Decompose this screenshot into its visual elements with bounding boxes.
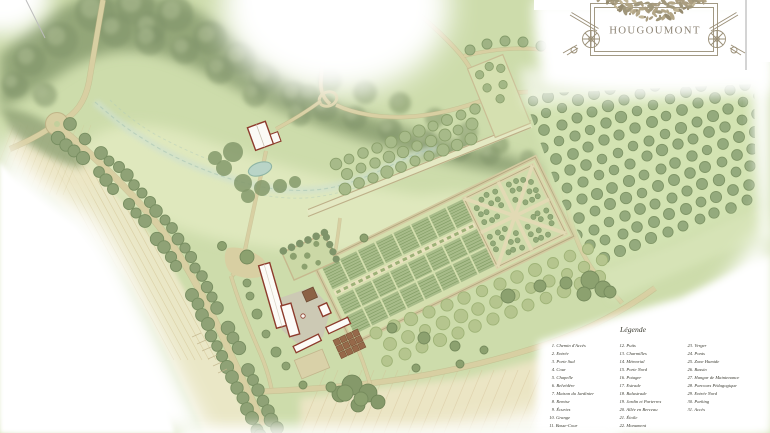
svg-text:HOUGOUMONT: HOUGOUMONT xyxy=(609,25,701,37)
